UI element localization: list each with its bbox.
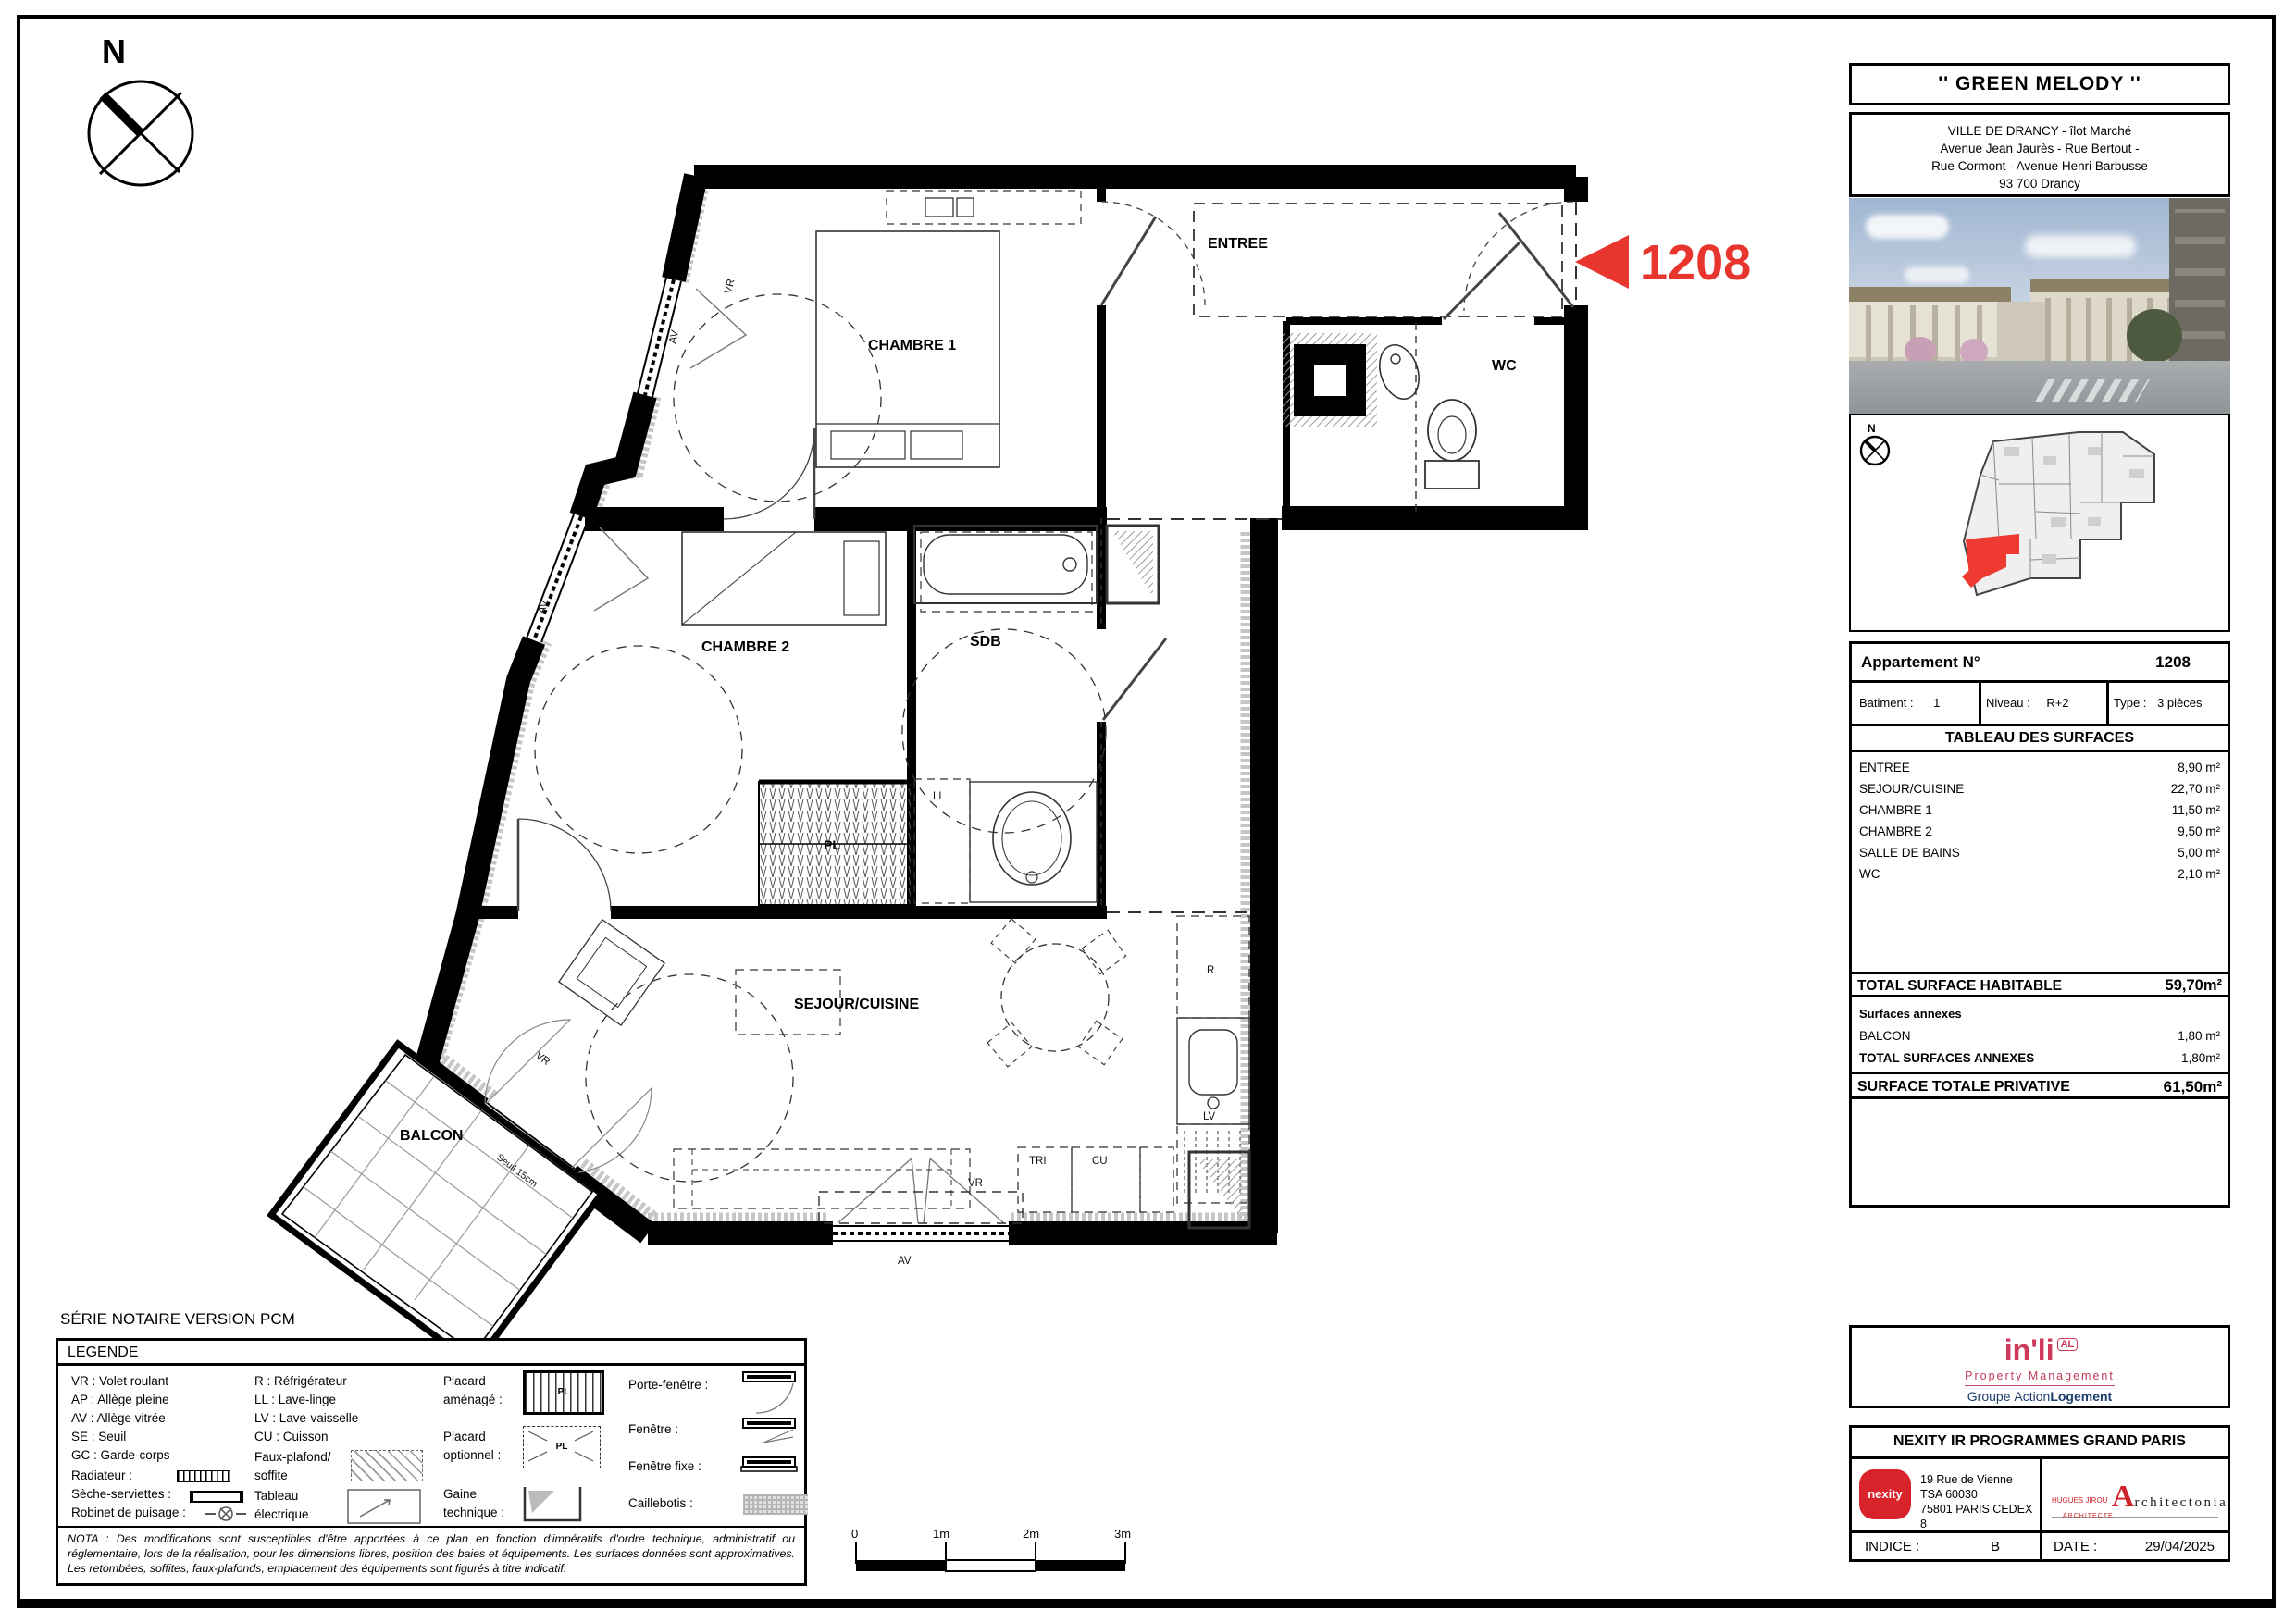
legend-item: soffite [254,1468,288,1482]
level-cell: Niveau : R+2 [1979,683,2109,724]
nexity-cell: nexity 19 Rue de Vienne TSA 60030 75801 … [1852,1459,2042,1530]
room-label-chambre1: CHAMBRE 1 [868,338,956,353]
technical-duct-icon [523,1485,582,1522]
legend-item: électrique [254,1507,309,1521]
inli-group-logement: Logement [2050,1389,2112,1404]
optional-closet-arrows-icon [523,1426,599,1467]
room-label-balcon: BALCON [400,1128,463,1144]
total-habitable-label: TOTAL SURFACE HABITABLE [1857,978,2062,995]
surface-row-label: SEJOUR/CUISINE [1859,778,1964,799]
surface-table-title: TABLEAU DES SURFACES [1852,726,2228,752]
annex-row-value: 1,80 m² [2178,1025,2220,1047]
inli-group-line: Groupe ActionLogement [1852,1389,2228,1404]
nexity-logo: nexity [1859,1469,1911,1519]
legend-item: Radiateur : [71,1468,132,1482]
tap-icon [205,1505,247,1522]
surface-row-label: CHAMBRE 2 [1859,821,1932,842]
annex-row: BALCON 1,80 m² [1852,1025,2228,1047]
balcony [271,1044,602,1365]
architectonia-rest: rchitectonia [2134,1495,2228,1510]
wc-fixtures [1373,340,1479,489]
window-av-1 [638,278,746,397]
scale-3m: 3m [1114,1527,1131,1541]
inli-group-prefix: Groupe [1967,1389,2011,1404]
legend-box: LEGENDE VR : Volet roulant AP : Allège p… [56,1338,807,1586]
address-line: 93 700 Drancy [1852,175,2228,192]
key-plan: N [1851,415,2227,628]
furniture [535,191,1126,1208]
opening-dashes [1101,202,1576,912]
nexity-address-line: 75801 PARIS CEDEX 8 [1920,1502,2040,1531]
nexity-address-line: 19 Rue de Vienne [1920,1472,2040,1487]
legend-item: technique : [443,1505,504,1519]
address-line: VILLE DE DRANCY - îlot Marché [1852,122,2228,140]
indice-label: INDICE : [1852,1539,1919,1555]
legend-item: Sèche-serviettes : [71,1487,171,1501]
surface-row-label: WC [1859,863,1880,885]
legend-item: Fenêtre : [628,1422,678,1436]
surface-row-label: CHAMBRE 1 [1859,799,1932,821]
level-value: R+2 [2033,696,2068,710]
surface-row: SEJOUR/CUISINE 22,70 m² [1852,778,2228,799]
architectonia-logo: HUGUES JIROU Architectonia [2052,1480,2218,1518]
unit-callout-arrow-icon [1575,235,1629,289]
legend-item: AP : Allège pleine [71,1393,169,1406]
total-habitable-row: TOTAL SURFACE HABITABLE 59,70m² [1852,972,2228,997]
scale-bar: 0 1m 2m 3m [851,1527,1131,1571]
apartment-number: 1208 [2155,653,2191,672]
total-private-row: SURFACE TOTALE PRIVATIVE 61,50m² [1852,1072,2228,1099]
type-label: Type : [2106,696,2146,710]
date-label: DATE : [2042,1539,2097,1555]
legend-item: Robinet de puisage : [71,1505,186,1519]
legend-item: LL : Lave-linge [254,1393,336,1406]
cloud [1866,215,1949,239]
apartment-label: Appartement N° [1861,653,1980,672]
tag-tri: TRI [1029,1156,1047,1167]
legend-item: Gaine [443,1487,477,1501]
surface-row-value: 9,50 m² [2178,821,2220,842]
legend-item: Faux-plafond/ [254,1450,331,1464]
nexity-body-box: nexity 19 Rue de Vienne TSA 60030 75801 … [1849,1456,2230,1532]
total-annex-label: TOTAL SURFACES ANNEXES [1859,1051,2034,1065]
surface-row: CHAMBRE 2 9,50 m² [1852,821,2228,842]
room-label-entree: ENTREE [1208,236,1268,252]
project-address-box: VILLE DE DRANCY - îlot Marché Avenue Jea… [1849,112,2230,197]
surface-row-value: 11,50 m² [2172,799,2220,821]
legend-item: VR : Volet roulant [71,1374,168,1388]
tag-cu: CU [1092,1156,1108,1167]
legend-item: GC : Garde-corps [71,1448,170,1462]
type-cell: Type : 3 pièces [2106,683,2228,724]
surface-table: Appartement N° 1208 Batiment : 1 Niveau … [1849,641,2230,1208]
type-value: 3 pièces [2150,696,2202,710]
total-annex-value: 1,80m² [2181,1051,2220,1065]
window-icon [739,1415,799,1448]
legend-item: optionnel : [443,1448,501,1462]
building-cell: Batiment : 1 [1852,683,1981,724]
inli-tagline: Property Management [1965,1369,2115,1386]
legend-item: Tableau [254,1489,298,1503]
window-av-2 [527,514,648,642]
radiator-icon [177,1470,230,1482]
windows [477,278,1023,1241]
nota-text: NOTA : Des modifications sont susceptibl… [58,1526,804,1586]
legend-item: Placard [443,1374,486,1388]
technical-shaft [1283,333,1377,427]
address-line: Avenue Jean Jaurès - Rue Bertout - [1852,140,2228,157]
electrical-panel-icon [347,1489,421,1524]
scale-0: 0 [851,1527,858,1541]
surface-row-label: SALLE DE BAINS [1859,842,1960,863]
tag-av-1: AV [667,329,681,345]
nexity-address: 19 Rue de Vienne TSA 60030 75801 PARIS C… [1920,1472,2040,1531]
annex-row-label: BALCON [1859,1025,1911,1047]
apartment-header: Appartement N° 1208 [1852,644,2228,683]
cloud [2025,235,2136,257]
project-title: '' GREEN MELODY '' [1938,73,2141,94]
legend-item: AV : Allège vitrée [71,1411,166,1425]
legend-item: SE : Seuil [71,1430,126,1443]
total-private-value: 61,50m² [2164,1078,2222,1096]
series-label: SÉRIE NOTAIRE VERSION PCM [60,1310,295,1329]
room-label-chambre2: CHAMBRE 2 [701,639,789,655]
surface-row: ENTREE 8,90 m² [1852,757,2228,778]
window-av-bottom [819,1158,1023,1241]
inli-group-action: Action [2014,1389,2050,1404]
surface-row-value: 2,10 m² [2178,863,2220,885]
room-label-sejour: SEJOUR/CUISINE [794,997,919,1012]
architect-title-small: ARCHITECTE [2063,1513,2114,1519]
tag-lv: LV [1203,1111,1216,1122]
key-plan-north-icon: N [1861,422,1889,465]
address-line: Rue Cormont - Avenue Henri Barbusse [1852,157,2228,175]
french-door-icon [739,1369,799,1415]
level-label: Niveau : [1979,696,2030,710]
indice-value: B [1991,1533,2000,1560]
total-habitable-value: 59,70m² [2166,977,2222,995]
total-private-label: SURFACE TOTALE PRIVATIVE [1857,1079,2070,1096]
tag-av-2: AV [536,599,551,615]
surface-row: WC 2,10 m² [1852,863,2228,885]
building-label: Batiment : [1852,696,1914,710]
tag-vr-bottom: VR [968,1178,983,1189]
annex-title: Surfaces annexes [1859,1007,1962,1021]
surface-row-value: 8,90 m² [2178,757,2220,778]
inli-logo-box: in'liAL Property Management Groupe Actio… [1849,1325,2230,1408]
date-value: 29/04/2025 [2145,1533,2215,1560]
architect-name-small: HUGUES JIROU [2052,1496,2107,1505]
towel-dryer-icon [190,1491,243,1503]
building-center [1997,302,2045,361]
bathroom-fixtures [914,526,1159,903]
nexity-address-line: TSA 60030 [1920,1487,2040,1502]
exterior-walls [426,176,1588,1233]
surface-row-value: 22,70 m² [2171,778,2220,799]
unit-callout-number: 1208 [1640,235,1751,291]
building-value: 1 [1917,696,1940,710]
scale-2m: 2m [1023,1527,1039,1541]
plan-tags: AV VR AV VR Seuil 15cm AV VR LL R LV TRI… [494,278,1215,1267]
fitted-closet-icon: PL [523,1370,604,1415]
scale-1m: 1m [933,1527,949,1541]
tag-ll: LL [933,791,945,802]
apartment-meta-row: Batiment : 1 Niveau : R+2 Type : 3 pièce… [1852,683,2228,726]
legend-item: aménagé : [443,1393,503,1406]
date-cell: DATE : 29/04/2025 [2042,1533,2228,1559]
unit-callout: 1208 [1575,235,1751,291]
key-plan-north-label: N [1868,422,1876,435]
tree [2127,309,2182,363]
building-render-photo [1849,198,2230,414]
legend-item: LV : Lave-vaisselle [254,1411,358,1425]
architect-cell: HUGUES JIROU Architectonia ARCHITECTE [2042,1459,2228,1530]
kitchen [1018,916,1249,1228]
indice-cell: INDICE : B [1852,1533,2042,1559]
grating-icon [743,1494,808,1515]
nexity-title-box: NEXITY IR PROGRAMMES GRAND PARIS [1849,1425,2230,1458]
street [1849,361,2230,414]
north-label: N [102,32,126,70]
room-label-wc: WC [1492,358,1517,374]
soffit-icon [351,1450,423,1481]
project-title-box: '' GREEN MELODY '' [1849,63,2230,105]
total-annex-row: TOTAL SURFACES ANNEXES 1,80m² [1852,1049,2228,1070]
inli-wordmark: in'li [2004,1333,2054,1367]
legend-item: Placard [443,1430,486,1443]
inli-logo: in'liAL [1852,1333,2228,1368]
room-label-pl: PL [824,837,840,852]
legend-item: CU : Cuisson [254,1430,329,1443]
key-plan-footprint [1962,432,2154,595]
key-plan-box: N [1849,414,2230,632]
crosswalk [2035,379,2150,402]
tag-vr-balcony: VR [533,1050,552,1068]
surface-row-value: 5,00 m² [2178,842,2220,863]
north-compass-icon: N [89,32,192,185]
architectonia-a: A [2112,1480,2135,1514]
legend-item: Porte-fenêtre : [628,1378,708,1392]
fixed-window-icon [739,1454,799,1476]
room-label-sdb: SDB [970,634,1001,650]
legend-item: Fenêtre fixe : [628,1459,701,1473]
legend-item: Caillebotis : [628,1496,693,1510]
legend-item: R : Réfrigérateur [254,1374,347,1388]
legend-title: LEGENDE [58,1341,804,1366]
indice-date-row: INDICE : B DATE : 29/04/2025 [1849,1530,2230,1562]
surface-row-label: ENTREE [1859,757,1910,778]
nexity-title: NEXITY IR PROGRAMMES GRAND PARIS [1893,1433,2186,1449]
cloud [1905,266,1969,283]
surface-row: CHAMBRE 1 11,50 m² [1852,799,2228,821]
tag-r: R [1207,965,1214,976]
tag-vr-1: VR [723,278,737,294]
tag-av-bottom: AV [898,1256,912,1267]
inli-al-badge: AL [2057,1338,2079,1351]
surface-row: SALLE DE BAINS 5,00 m² [1852,842,2228,863]
wall-insulation [438,181,1251,1221]
